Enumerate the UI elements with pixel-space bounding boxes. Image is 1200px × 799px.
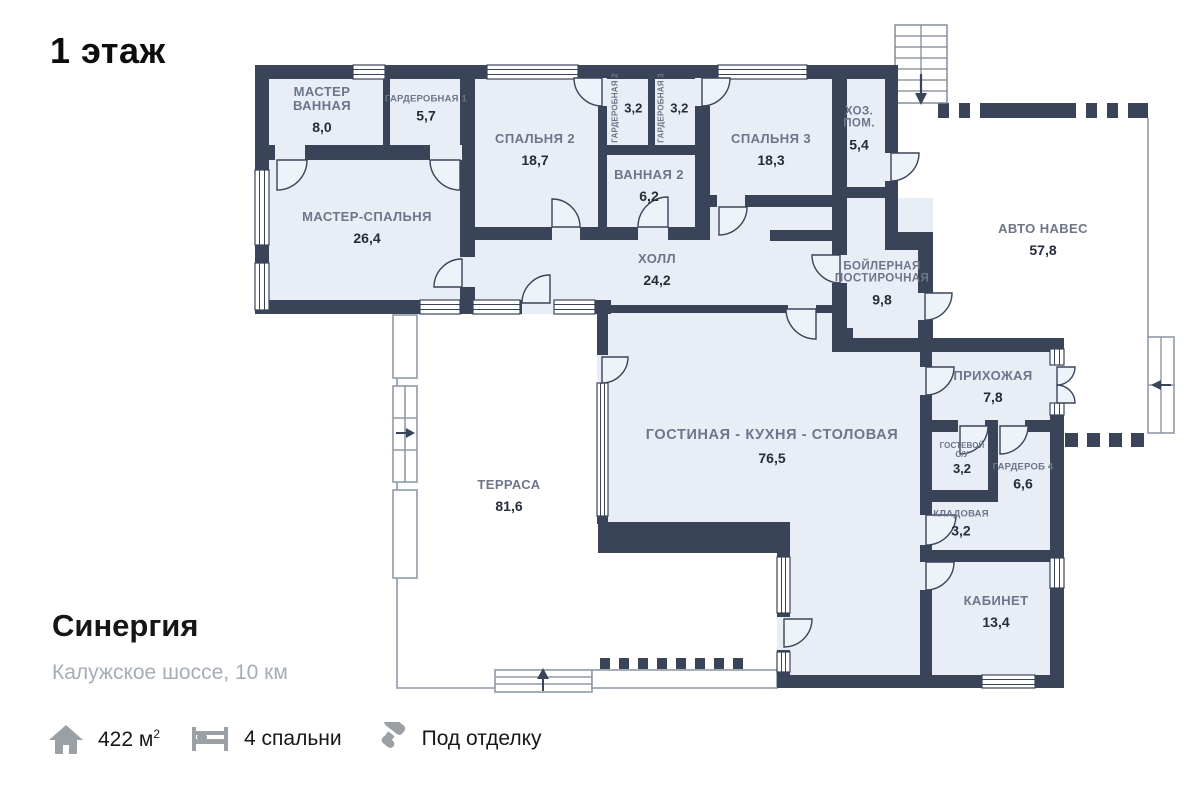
project-location: Калужское шоссе, 10 км <box>52 661 288 685</box>
stat-bedrooms: 4 спальни <box>190 723 342 755</box>
carport-bottom-posts <box>1065 433 1144 447</box>
exterior-stairs <box>895 25 947 105</box>
stats-bar: 422 м2 4 спальни <box>48 722 542 756</box>
stat-finish-text: Под отделку <box>422 727 542 751</box>
project-info: Синергия Калужское шоссе, 10 км <box>52 608 288 685</box>
floor-title: 1 этаж <box>50 30 166 72</box>
carport-top-posts <box>938 103 1148 118</box>
house-icon <box>48 723 84 755</box>
stat-bedrooms-text: 4 спальни <box>244 727 342 751</box>
stat-finish: Под отделку <box>372 722 542 756</box>
bed-icon <box>190 723 230 755</box>
terrace-step-arrows <box>396 428 549 691</box>
terrace-posts <box>600 658 743 669</box>
paint-roller-icon <box>372 722 408 756</box>
project-name: Синергия <box>52 608 288 644</box>
floorplan-page: МАСТЕР ВАННАЯ 8,0 ГАРДЕРОБНАЯ 1 5,7 СПАЛ… <box>0 0 1200 799</box>
entrance-porch <box>1148 337 1174 433</box>
stat-area-text: 422 м2 <box>98 727 160 752</box>
stat-area: 422 м2 <box>48 723 160 755</box>
